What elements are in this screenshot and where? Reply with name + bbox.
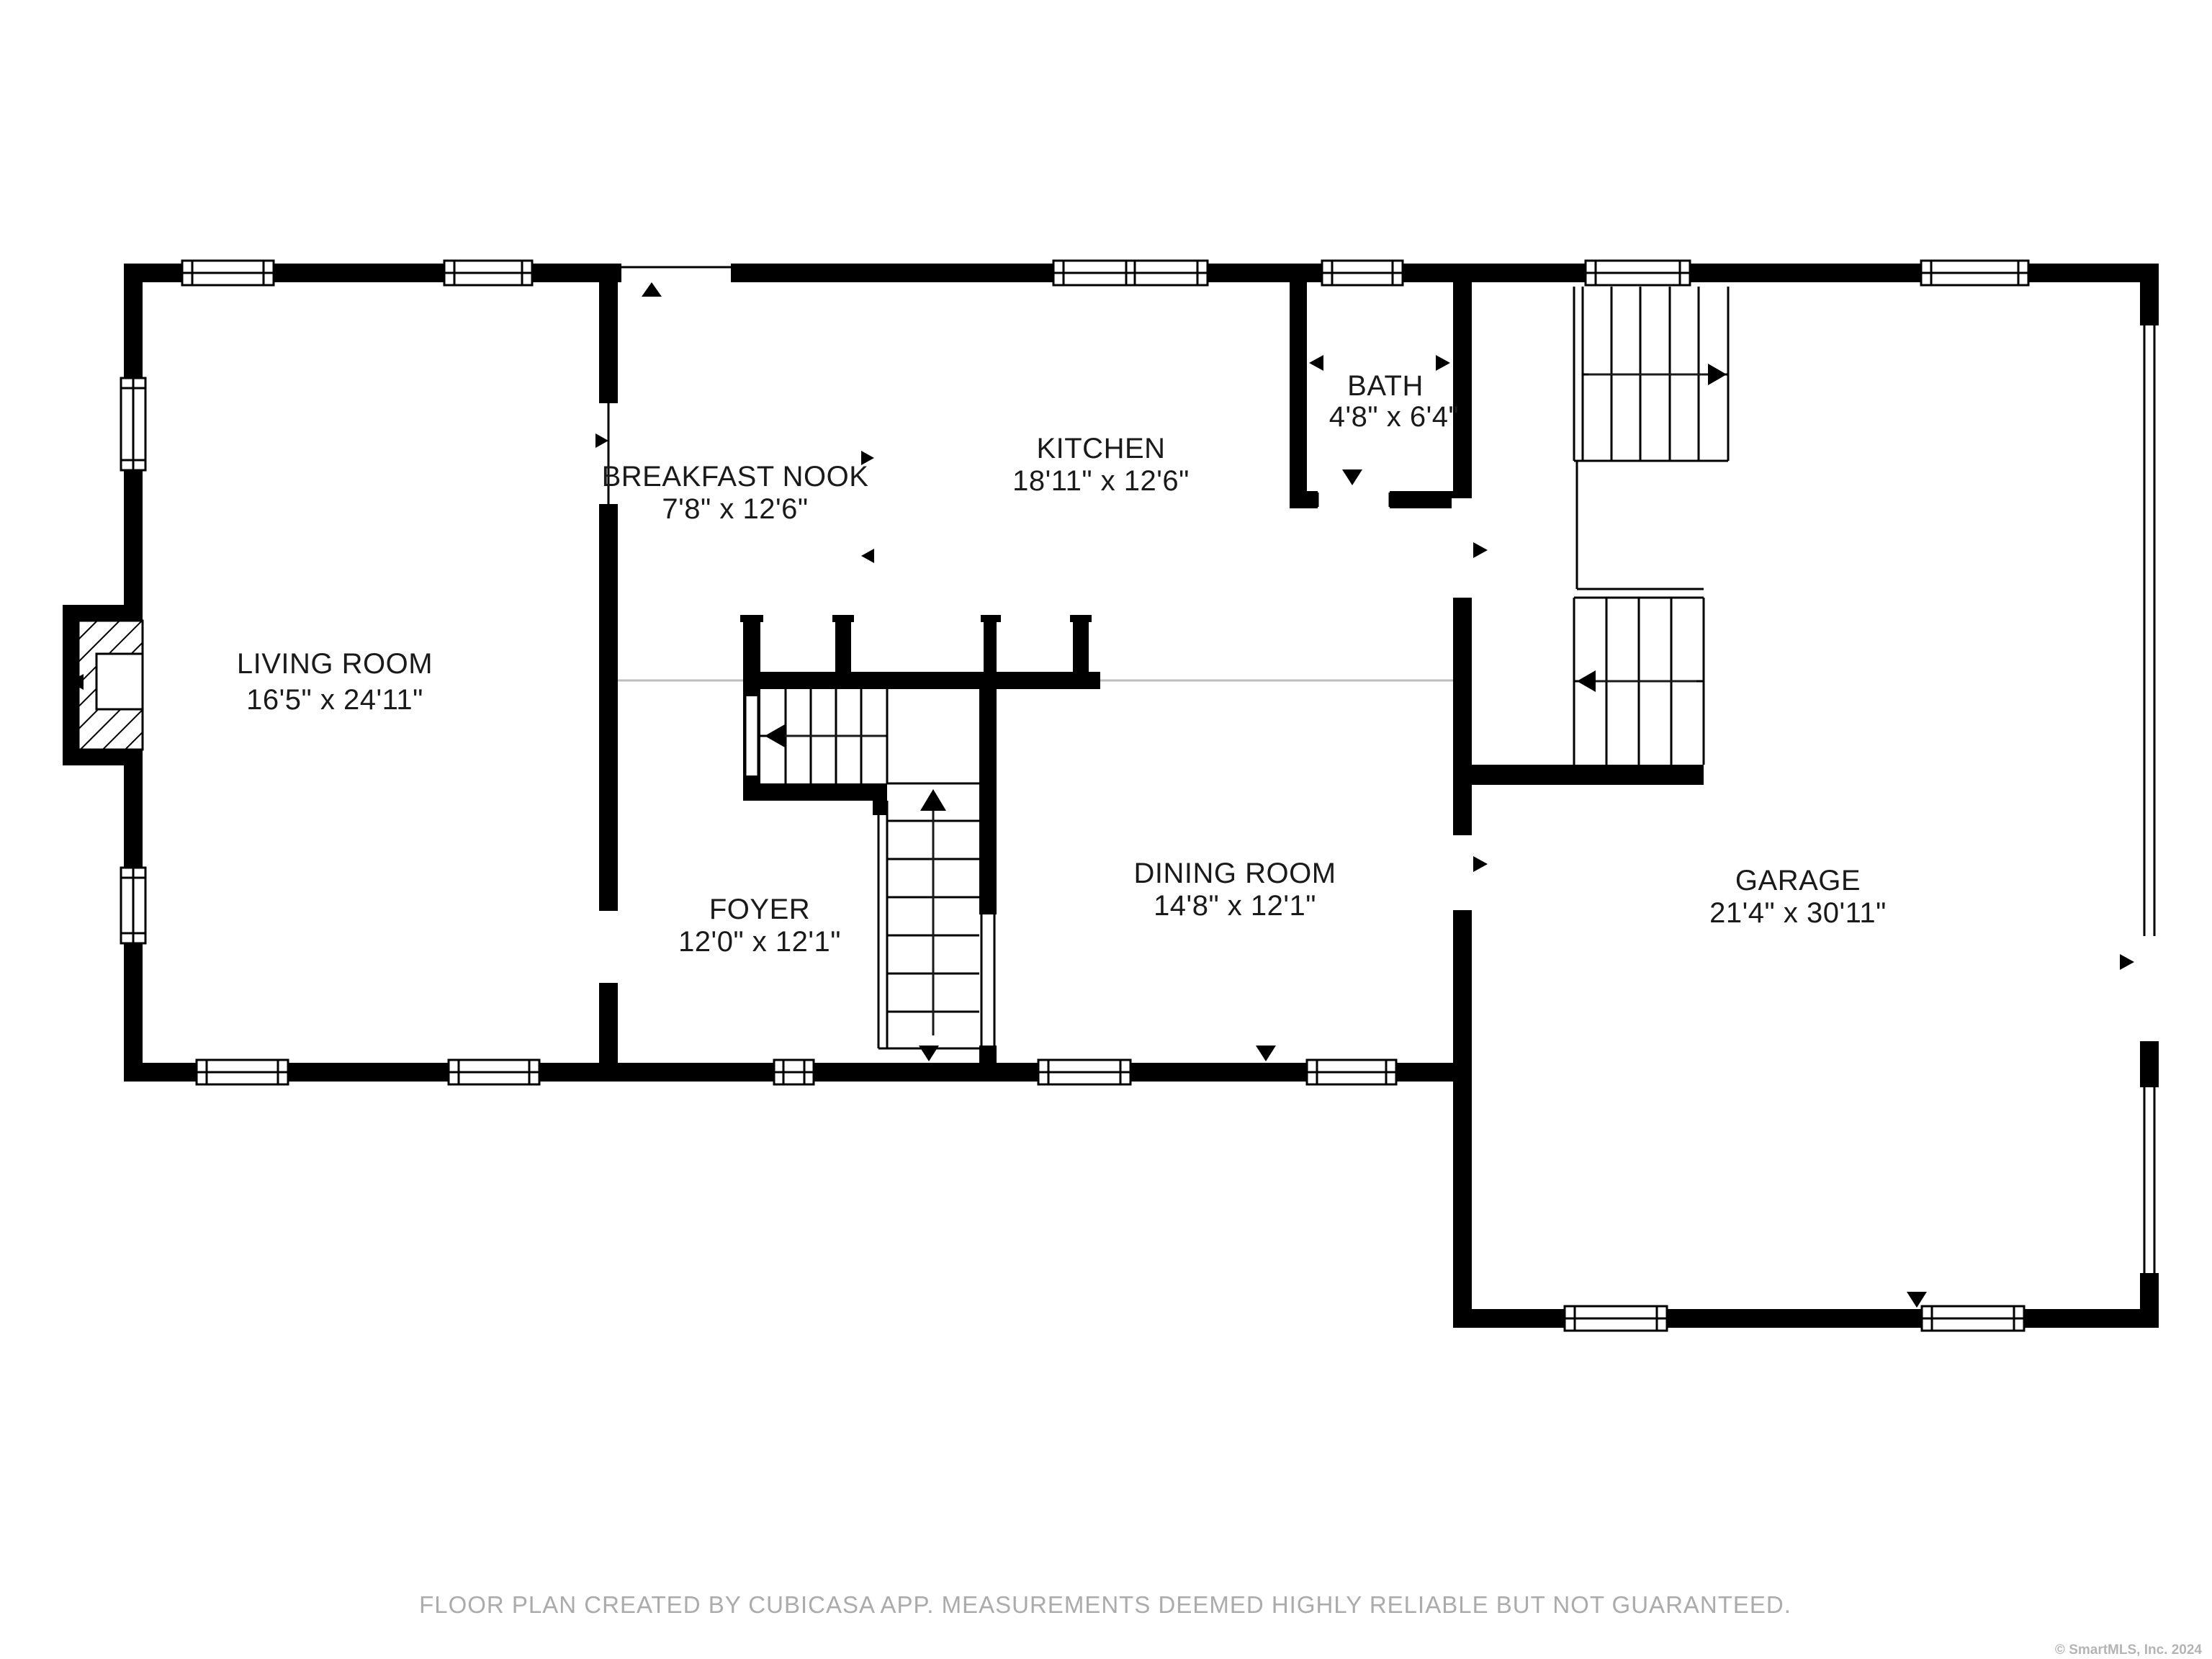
opening-garage-door-2	[2139, 1087, 2160, 1273]
dining-room-name: DINING ROOM	[1133, 858, 1336, 889]
garage-name: GARAGE	[1735, 865, 1861, 896]
window	[1586, 261, 1690, 285]
window	[121, 868, 145, 943]
window	[121, 378, 145, 470]
bath-dimensions: 4'8" x 6'4"	[1329, 401, 1459, 433]
opening-garage-door-1	[2139, 325, 2160, 936]
kitchen-dimensions: 18'11" x 12'6"	[1012, 465, 1190, 497]
wall-stair-corner	[873, 801, 887, 815]
window	[197, 1060, 288, 1084]
wall-stub-1	[743, 618, 760, 673]
foyer-name: FOYER	[709, 894, 810, 925]
copyright-text: © SmartMLS, Inc. 2024	[2055, 1642, 2203, 1658]
opening-breakfast-top	[621, 262, 731, 284]
floor-plan-svg: LIVING ROOM 16'5" x 24'11" BREAKFAST NOO…	[0, 0, 2212, 1659]
window	[1307, 1060, 1396, 1084]
wall-stub-3	[984, 618, 997, 673]
wall-stub-3-cap	[981, 615, 1001, 622]
wall-stub-2-cap	[832, 615, 854, 622]
room-label-garage: GARAGE 21'4" x 30'11"	[1709, 865, 1887, 929]
breakfast-nook-dimensions: 7'8" x 12'6"	[662, 493, 808, 525]
page-background	[0, 0, 2212, 1659]
window	[1038, 1060, 1130, 1084]
wall-stub-4	[1073, 618, 1089, 673]
fireplace	[63, 605, 143, 765]
window	[444, 261, 532, 285]
window	[1921, 261, 2028, 285]
window	[1322, 261, 1403, 285]
wall-garage-stair-base	[1472, 765, 1704, 785]
wall-bath-west	[1290, 282, 1307, 508]
disclaimer-text: FLOOR PLAN CREATED BY CUBICASA APP. MEAS…	[419, 1591, 1791, 1618]
wall-stair-south	[743, 783, 887, 801]
wall-kitchen-south	[743, 672, 1100, 689]
opening-hall-landing	[1452, 498, 1473, 598]
window	[1565, 1306, 1667, 1331]
kitchen-name: KITCHEN	[1036, 433, 1165, 464]
room-label-kitchen: KITCHEN 18'11" x 12'6"	[1012, 433, 1190, 497]
window-double	[1053, 261, 1208, 285]
wall-stub-4-cap	[1070, 615, 1092, 622]
window	[1922, 1306, 2024, 1331]
breakfast-nook-name: BREAKFAST NOOK	[602, 461, 869, 493]
foyer-dimensions: 12'0" x 12'1"	[678, 926, 841, 958]
window	[182, 261, 274, 285]
opening-dining-garage	[1452, 835, 1473, 910]
living-room-dimensions: 16'5" x 24'11"	[246, 684, 423, 716]
wall-stub-2	[835, 618, 851, 673]
living-room-name: LIVING ROOM	[237, 648, 433, 680]
opening-garage-side-door	[2139, 936, 2160, 1041]
room-label-dining-room: DINING ROOM 14'8" x 12'1"	[1133, 858, 1336, 922]
wall-garage-bottom	[1453, 1309, 2159, 1328]
opening-foyer-living	[598, 911, 619, 983]
window-small	[774, 1060, 814, 1084]
dining-room-dimensions: 14'8" x 12'1"	[1154, 890, 1316, 922]
wall-stub-1-cap	[740, 615, 763, 622]
opening-bath-door	[1318, 490, 1390, 510]
window	[449, 1060, 539, 1084]
opening-stair-west	[745, 696, 759, 775]
bath-name: BATH	[1347, 370, 1424, 402]
fireplace-firebox	[96, 654, 143, 709]
garage-dimensions: 21'4" x 30'11"	[1709, 897, 1887, 929]
